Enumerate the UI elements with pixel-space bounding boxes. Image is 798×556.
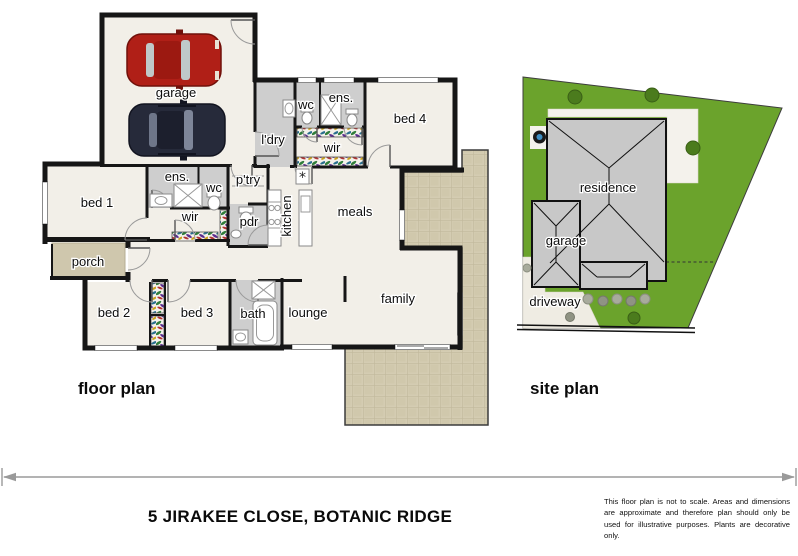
label-wir1: wir — [181, 209, 199, 224]
label-porch: porch — [72, 254, 105, 269]
label-kitchen: kitchen — [279, 195, 294, 236]
label-garage: garage — [156, 85, 196, 100]
vanity-icon — [150, 194, 172, 207]
disclaimer-text: This floor plan is not to scale. Areas a… — [604, 496, 790, 542]
label-ens2: ens. — [329, 90, 354, 105]
shower-icon — [174, 184, 202, 207]
site-plan: residence garage driveway — [517, 77, 782, 333]
toilet-icon — [346, 109, 358, 126]
label-bed2: bed 2 — [98, 305, 131, 320]
label-wir2: wir — [323, 140, 341, 155]
hot-water-unit: * — [296, 169, 309, 186]
shower-icon — [252, 281, 275, 299]
basin-icon — [231, 230, 241, 238]
label-site-garage: garage — [546, 233, 586, 248]
laundry-trough-icon — [283, 100, 295, 117]
address-title: 5 JIRAKEE CLOSE, BOTANIC RIDGE — [0, 507, 600, 527]
label-bed4: bed 4 — [394, 111, 427, 126]
roof-plan — [532, 119, 666, 289]
label-ens1: ens. — [165, 169, 190, 184]
label-bed3: bed 3 — [181, 305, 214, 320]
label-ldry: l'dry — [261, 132, 285, 147]
label-bath: bath — [240, 306, 265, 321]
label-wc2: wc — [297, 97, 314, 112]
site-plan-caption: site plan — [530, 379, 599, 399]
label-lounge: lounge — [288, 305, 327, 320]
dimension-arrow — [2, 468, 796, 486]
label-bed1: bed 1 — [81, 195, 114, 210]
floor-plan-caption: floor plan — [78, 379, 155, 399]
label-meals: meals — [338, 204, 373, 219]
vanity-icon — [233, 330, 248, 344]
car-red — [127, 30, 221, 91]
floor-plan: * garage bed 1 ens. wc wir — [43, 13, 489, 426]
car-navy — [129, 100, 225, 161]
label-driveway: driveway — [529, 294, 581, 309]
label-residence: residence — [580, 180, 636, 195]
label-pdr: pdr — [240, 214, 259, 229]
hot-water-symbol: * — [299, 170, 306, 186]
label-ptry: p'try — [236, 172, 261, 187]
plans-graphic: * garage bed 1 ens. wc wir — [0, 0, 798, 492]
label-family: family — [381, 291, 415, 306]
floorplan-page: * garage bed 1 ens. wc wir — [0, 0, 798, 556]
label-wc1: wc — [205, 180, 222, 195]
